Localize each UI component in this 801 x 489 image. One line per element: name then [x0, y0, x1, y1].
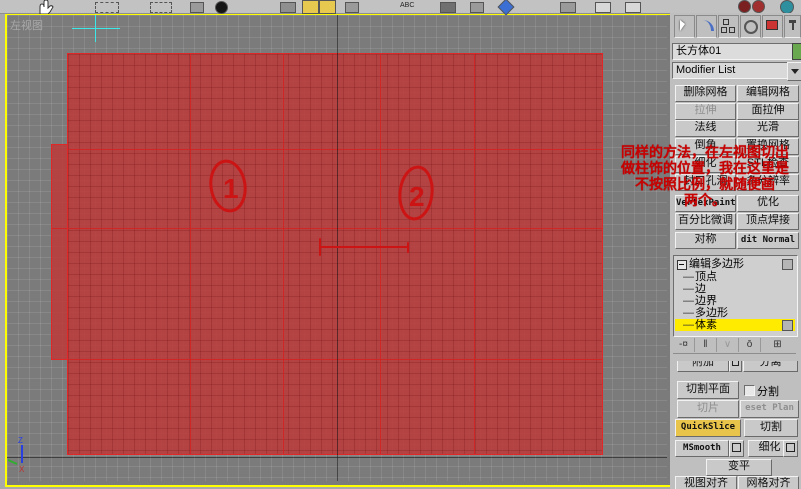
viewport-canvas[interactable]: 左视图 1 2 Z X: [7, 15, 667, 481]
tessellate-settings-button[interactable]: [783, 440, 798, 457]
attach-button[interactable]: 附加: [677, 361, 729, 372]
modifier-button-cap-holes[interactable]: 封口孔洞: [675, 174, 736, 191]
hand-cursor: [34, 0, 56, 14]
modifier-button-edit-normal[interactable]: dit Normal: [737, 232, 799, 249]
stack-item-edit-poly[interactable]: 编辑多边形: [675, 258, 795, 270]
viewport-label[interactable]: 左视图: [10, 17, 43, 33]
layer-icon[interactable]: [560, 2, 576, 13]
curve-editor-icon[interactable]: [595, 2, 611, 13]
cut-button[interactable]: 切割: [744, 419, 798, 437]
modifier-button-edit-mesh[interactable]: 编辑网格: [737, 85, 799, 102]
split-checkbox-label[interactable]: 分割: [757, 383, 779, 399]
mesh-edge: [190, 54, 191, 454]
modifier-button-extrude: 拉伸: [675, 103, 736, 120]
grid-axis-vertical: [337, 15, 338, 481]
black-circle-icon[interactable]: [215, 1, 228, 14]
tab-display[interactable]: [762, 15, 783, 38]
crosshair-horizontal: [72, 28, 120, 29]
schematic-view-icon[interactable]: [625, 2, 641, 13]
mesh-edge: [380, 54, 381, 454]
tab-hierarchy[interactable]: [718, 15, 739, 38]
split-checkbox[interactable]: [744, 385, 755, 396]
array-icon[interactable]: [470, 2, 484, 13]
arrow-icon: [680, 20, 685, 31]
mesh-edge: [474, 54, 475, 454]
angle-snap-icon[interactable]: [319, 0, 336, 14]
render-setup-icon[interactable]: [780, 0, 794, 14]
hierarchy-icon: [723, 19, 729, 25]
reset-plane-button: eset Plan: [740, 400, 799, 418]
viewport-left-view[interactable]: 左视图 1 2 Z X: [5, 13, 673, 487]
axis-label-x: X: [19, 465, 25, 474]
mesh-cube-icon: [782, 259, 793, 270]
expand-box-icon[interactable]: [677, 260, 687, 270]
modifier-button-stl-check[interactable]: STL检查: [737, 156, 799, 173]
spellcheck-icon[interactable]: ABC: [400, 2, 414, 9]
mesh-edge: [68, 359, 602, 360]
modifier-button-face-extrude[interactable]: 面拉伸: [737, 103, 799, 120]
material-editor-sphere2-icon[interactable]: [752, 0, 765, 13]
msmooth-button[interactable]: MSmooth: [675, 440, 729, 457]
stack-item-border[interactable]: —边界: [675, 295, 801, 307]
monitor-icon: [766, 20, 778, 30]
main-toolbar: ABC: [0, 0, 801, 14]
object-name-field[interactable]: 长方体01: [672, 43, 794, 60]
pin-stack-icon[interactable]: -¤: [673, 338, 695, 352]
mirror-icon[interactable]: [440, 2, 456, 13]
modifier-button-multires[interactable]: 多分辨率: [737, 174, 799, 191]
quickslice-button[interactable]: QuickSlice: [675, 419, 741, 437]
axis-tripod: [8, 445, 22, 464]
modifier-button-bevel[interactable]: 倒角: [675, 138, 736, 155]
configure-modifier-sets-icon[interactable]: ⊞: [761, 338, 794, 352]
modifier-list-arrow-button[interactable]: [787, 62, 801, 81]
screenshot-3dsmax: { "window": { "spellcheck_label": "ABC",…: [0, 0, 801, 489]
attach-settings-button[interactable]: [729, 361, 742, 372]
crosshair-vertical: [95, 15, 96, 42]
mesh-edge: [68, 149, 602, 150]
mesh-edge: [283, 54, 284, 454]
stack-toolbar: -¤ ‖ ∨ ō ⊞: [673, 337, 796, 354]
make-planar-button[interactable]: 变平: [706, 459, 772, 476]
modifier-button-symmetry[interactable]: 对称: [675, 232, 736, 249]
snap-toggle-icon[interactable]: [302, 0, 319, 14]
axis-label-z: Z: [18, 436, 23, 445]
modifier-button-vertexpaint[interactable]: VertexPaint: [675, 195, 736, 212]
modifier-button-smooth[interactable]: 光滑: [737, 120, 799, 137]
modifier-button-optimize[interactable]: 优化: [737, 195, 799, 212]
grid-axis-horizontal: [7, 457, 667, 458]
stack-item-element-selected[interactable]: —体素: [675, 319, 795, 331]
modifier-list-dropdown[interactable]: Modifier List: [672, 62, 790, 79]
modifier-button-percent-snap[interactable]: 百分比微调: [675, 213, 736, 230]
align-icon[interactable]: [498, 0, 515, 15]
modifier-button-delete-mesh[interactable]: 删除网格: [675, 85, 736, 102]
stack-item-vertex[interactable]: —顶点: [675, 271, 801, 283]
make-unique-icon[interactable]: ∨: [717, 338, 739, 352]
show-end-result-icon[interactable]: ‖: [695, 338, 717, 352]
chevron-down-icon: [791, 69, 799, 74]
slice-button: 切片: [677, 400, 739, 418]
selected-mesh-box[interactable]: [67, 53, 603, 455]
tab-modify[interactable]: [696, 15, 717, 38]
wheel-icon: [744, 20, 758, 34]
grid-align-button[interactable]: 网格对齐: [738, 476, 799, 489]
modifier-button-normal[interactable]: 法线: [675, 120, 736, 137]
tab-motion[interactable]: [740, 15, 761, 38]
mesh-cube-icon: [782, 320, 793, 331]
stack-item-polygon[interactable]: —多边形: [675, 307, 801, 319]
detach-button[interactable]: 分离: [743, 361, 798, 372]
stack-item-edge[interactable]: —边: [675, 283, 801, 295]
tab-create[interactable]: [674, 15, 695, 38]
modifier-button-tessellate-mod[interactable]: 细化: [675, 156, 736, 173]
percent-snap-icon[interactable]: [345, 2, 359, 13]
material-editor-sphere1-icon[interactable]: [738, 0, 751, 13]
object-color-swatch[interactable]: [792, 43, 801, 60]
arc-rotate-icon[interactable]: [280, 2, 296, 13]
lasso-select-icon[interactable]: [150, 2, 172, 13]
tab-utilities[interactable]: [784, 15, 801, 38]
view-align-button[interactable]: 视图对齐: [675, 476, 737, 489]
command-panel: 长方体01 Modifier List 删除网格 编辑网格 拉伸 面拉伸 法线 …: [670, 13, 801, 489]
msmooth-settings-button[interactable]: [729, 440, 744, 457]
dotted-select-region-icon[interactable]: [95, 2, 119, 13]
mesh-edge: [68, 228, 602, 229]
edit-geometry-rollout: 附加 分离 切割平面 分割 切片 eset Plan QuickSlice 切割…: [670, 361, 801, 489]
modifier-button-displace-mesh[interactable]: 置换网格: [737, 138, 799, 155]
grid-icon[interactable]: [190, 2, 204, 13]
modifier-button-vertex-weld[interactable]: 顶点焊接: [737, 213, 799, 230]
modifier-stack-list: 编辑多边形 —顶点 —边 —边界 —多边形 —体素: [673, 255, 798, 337]
slice-plane-button[interactable]: 切割平面: [677, 381, 739, 399]
bend-curve-icon: [700, 20, 714, 31]
remove-modifier-icon[interactable]: ō: [739, 338, 761, 352]
